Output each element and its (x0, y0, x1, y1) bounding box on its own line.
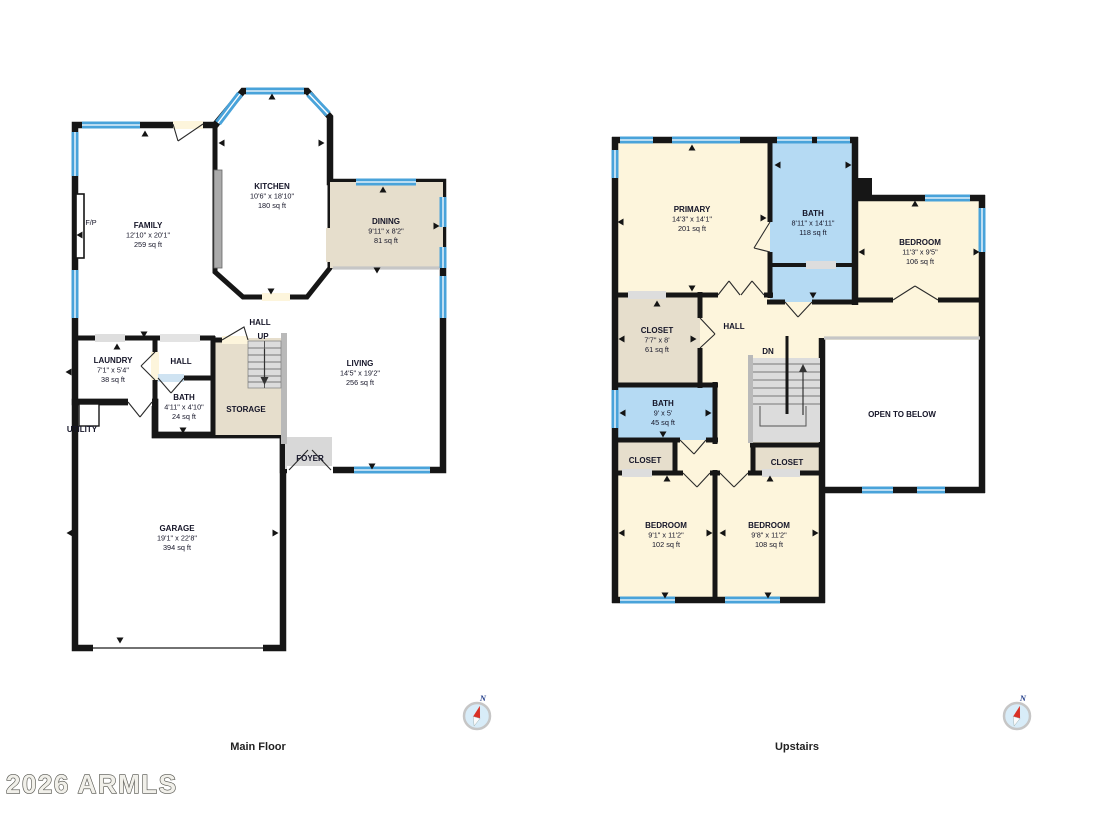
room-label: CLOSET (641, 326, 674, 335)
room-label: BEDROOM (645, 521, 687, 530)
room-label: KITCHEN (254, 182, 290, 191)
room-label: BEDROOM (748, 521, 790, 530)
fireplace-label: F/P (85, 218, 96, 227)
room-dims: 14'5" x 19'2" (340, 369, 380, 378)
room-dims: 7'7" x 8' (644, 336, 670, 345)
hall-up-label: HALL (723, 322, 744, 331)
room-laundry: LAUNDRY 7'1" x 5'4" 38 sq ft (94, 356, 133, 384)
room-area: 106 sq ft (906, 257, 934, 266)
closet2-label: CLOSET (629, 456, 662, 465)
room-label: FAMILY (134, 221, 163, 230)
armls-watermark: 2026 ARMLS (6, 769, 178, 799)
room-dims: 8'11" x 14'11" (792, 219, 835, 228)
room-family: FAMILY 12'10" x 20'1" 259 sq ft (126, 221, 170, 249)
room-area: 102 sq ft (652, 540, 680, 549)
room-area: 259 sq ft (134, 240, 162, 249)
stairs-down-label: DN (762, 347, 774, 356)
room-bath2: BATH 9' x 5' 45 sq ft (651, 399, 675, 427)
room-label: LIVING (347, 359, 374, 368)
compass-icon: N (464, 693, 490, 729)
room-area: 108 sq ft (755, 540, 783, 549)
room-dims: 4'11" x 4'10" (164, 403, 204, 412)
room-closet1: CLOSET 7'7" x 8' 61 sq ft (641, 326, 674, 354)
room-area: 118 sq ft (799, 228, 826, 237)
hall2-label: HALL (170, 357, 191, 366)
compass-north-label: N (479, 693, 487, 703)
closet3-label: CLOSET (771, 458, 804, 467)
room-dims: 7'1" x 5'4" (97, 366, 129, 375)
room-area: 38 sq ft (101, 375, 125, 384)
room-dims: 10'6" x 18'10" (250, 192, 294, 201)
compass-north-label: N (1019, 693, 1027, 703)
utility-closet (79, 404, 99, 426)
floorplan-page: FAMILY 12'10" x 20'1" 259 sq ft KITCHEN … (0, 0, 1096, 820)
fireplace-icon (76, 194, 84, 258)
room-area: 24 sq ft (172, 412, 196, 421)
room-label: BATH (802, 209, 824, 218)
room-dims: 11'3" x 9'5" (902, 248, 938, 257)
room-dims: 19'1" x 22'8" (157, 534, 197, 543)
open-to-below-label: OPEN TO BELOW (868, 410, 936, 419)
room-area: 180 sq ft (258, 201, 286, 210)
room-label: BATH (652, 399, 674, 408)
main-floor-caption: Main Floor (230, 741, 286, 753)
room-area: 256 sq ft (346, 378, 374, 387)
room-dims: 12'10" x 20'1" (126, 231, 170, 240)
room-area: 45 sq ft (651, 418, 675, 427)
room-area: 201 sq ft (678, 224, 706, 233)
room-living: LIVING 14'5" x 19'2" 256 sq ft (340, 359, 380, 387)
floorplan-drawing: FAMILY 12'10" x 20'1" 259 sq ft KITCHEN … (0, 0, 1096, 820)
room-dims: 14'3" x 14'1" (672, 215, 712, 224)
room-label: GARAGE (159, 524, 195, 533)
room-dims: 9'1" x 11'2" (648, 531, 684, 540)
room-label: PRIMARY (674, 205, 711, 214)
room-dims: 9'11" x 8'2" (368, 227, 404, 236)
kitchen-counter-icon (214, 170, 222, 268)
upstairs-caption: Upstairs (775, 741, 819, 753)
room-label: BATH (173, 393, 195, 402)
hall-label: HALL (249, 318, 270, 327)
room-area: 61 sq ft (645, 345, 669, 354)
upstairs-plan: PRIMARY 14'3" x 14'1" 201 sq ft BATH 8'1… (612, 137, 985, 603)
stairs-up-label: UP (257, 332, 269, 341)
room-area: 81 sq ft (374, 236, 398, 245)
room-label: LAUNDRY (94, 356, 133, 365)
room-label: DINING (372, 217, 400, 226)
room-area: 394 sq ft (163, 543, 191, 552)
compass-icon: N (1004, 693, 1030, 729)
room-dims: 9'8" x 11'2" (751, 531, 787, 540)
foyer-label: FOYER (296, 454, 324, 463)
storage-label: STORAGE (226, 405, 266, 414)
room-bath-main: BATH 4'11" x 4'10" 24 sq ft (164, 393, 204, 421)
room-label: BEDROOM (899, 238, 941, 247)
utility-label: UTILITY (67, 425, 98, 434)
main-floor-plan: FAMILY 12'10" x 20'1" 259 sq ft KITCHEN … (66, 91, 444, 652)
room-kitchen: KITCHEN 10'6" x 18'10" 180 sq ft (250, 182, 294, 210)
room-garage: GARAGE 19'1" x 22'8" 394 sq ft (157, 524, 197, 552)
room-dims: 9' x 5' (654, 409, 673, 418)
